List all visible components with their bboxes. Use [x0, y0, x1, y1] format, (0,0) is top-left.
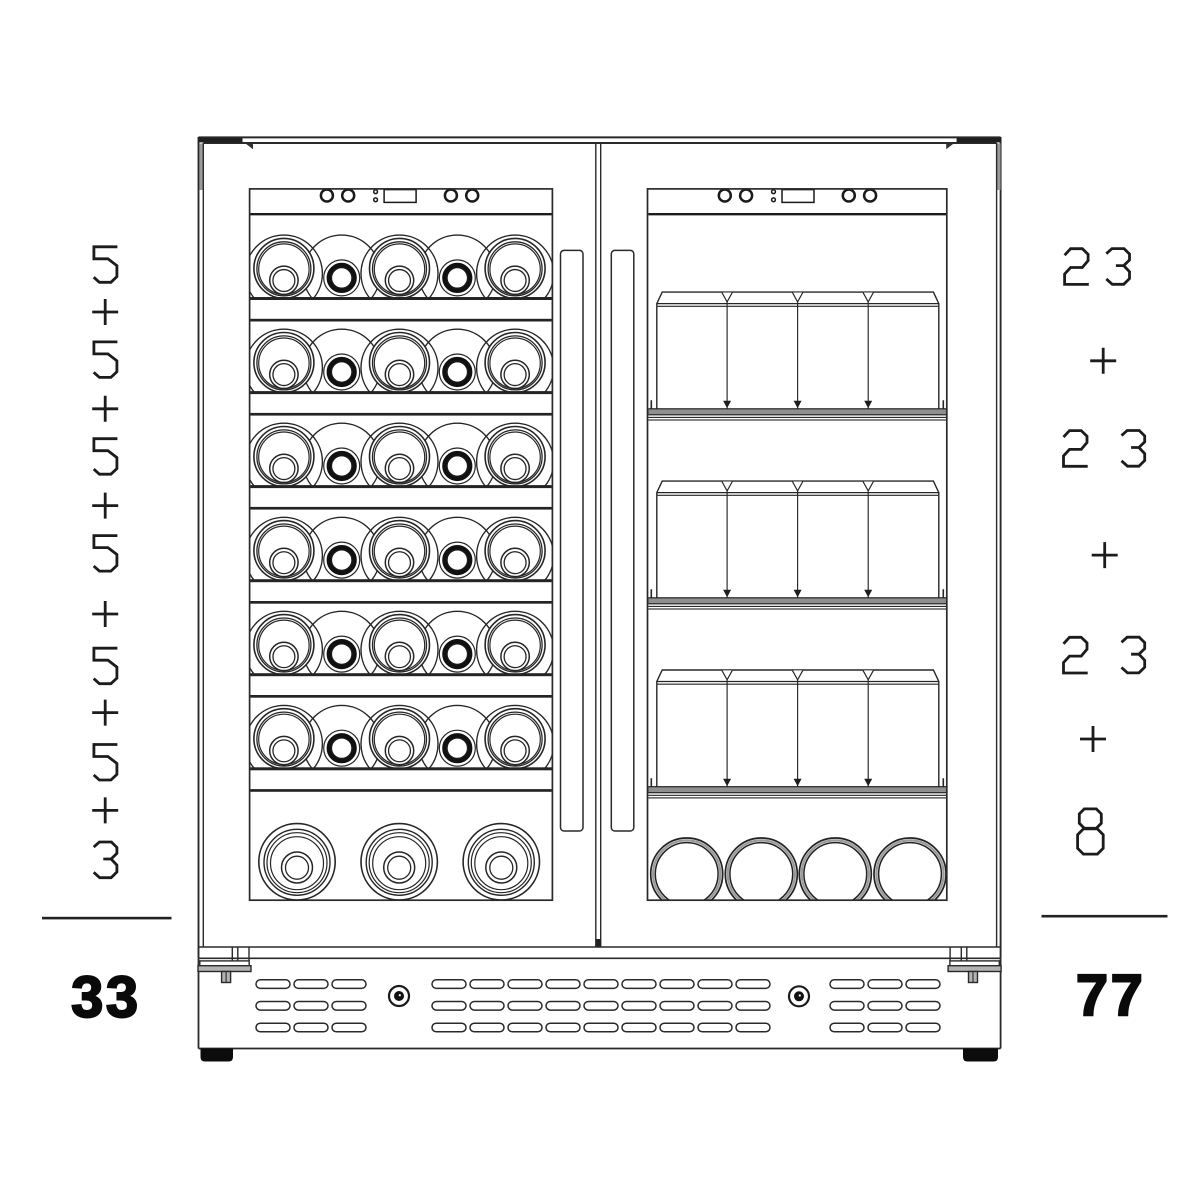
svg-text:77: 77	[1076, 963, 1146, 1028]
svg-text:33: 33	[71, 965, 141, 1030]
